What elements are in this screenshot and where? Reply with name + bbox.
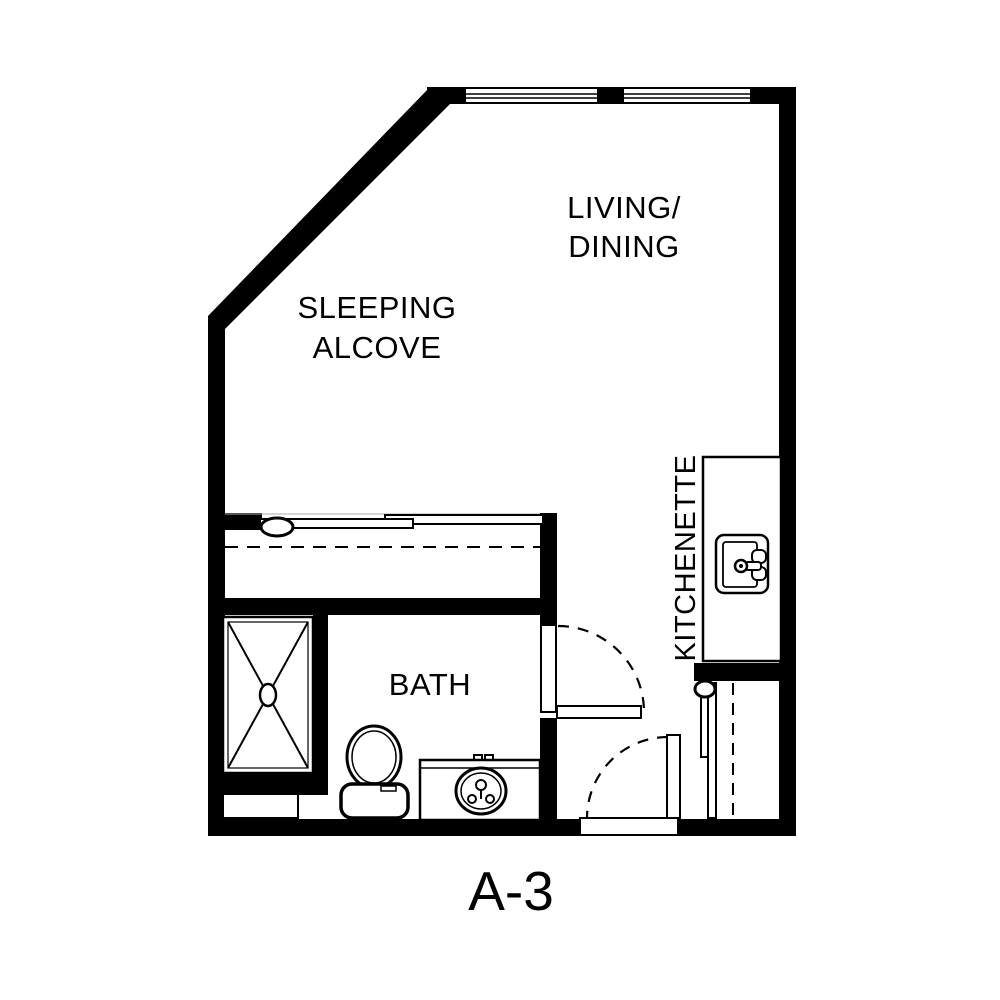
shower-stall-icon (223, 617, 313, 773)
kitchenette-counter (703, 457, 781, 661)
alcove-closet (225, 514, 545, 547)
shower-drain-icon (260, 684, 276, 706)
kitchenette-south-wall (694, 663, 780, 681)
door-swing-arc (558, 626, 644, 712)
toilet-icon (341, 726, 408, 818)
floor-plan-drawing: LIVING/ DINING SLEEPING ALCOVE KITCHENET… (0, 0, 1000, 1000)
bottom-wall (208, 819, 796, 836)
bath-label: BATH (389, 667, 471, 702)
door-swing-arc (587, 737, 668, 818)
window-icon (623, 88, 751, 103)
shower-right-wall (313, 610, 328, 795)
bath-door (541, 625, 644, 718)
room-labels: LIVING/ DINING SLEEPING ALCOVE KITCHENET… (297, 190, 702, 702)
floor-plan-a3: LIVING/ DINING SLEEPING ALCOVE KITCHENET… (0, 0, 1000, 1000)
window-icon (465, 88, 598, 103)
living-dining-label-line1: LIVING/ (567, 190, 681, 225)
entry-door (580, 735, 680, 835)
closet-track-stub-wall (222, 513, 262, 530)
sleeping-alcove-label-line2: ALCOVE (313, 330, 442, 365)
vanity-sink-icon (420, 755, 540, 820)
kitchen-sink-icon (716, 535, 768, 593)
shower-bottom-wall (208, 772, 328, 795)
faucet-icon (476, 780, 486, 790)
kitchenette-label: KITCHENETTE (670, 455, 702, 662)
door-leaf (667, 735, 680, 818)
plan-title: A-3 (468, 860, 554, 922)
bath-north-wall (208, 598, 557, 615)
shower-niche (223, 794, 298, 818)
door-handle-icon (695, 681, 715, 697)
door-jamb (541, 625, 556, 712)
sleeping-alcove-label-line1: SLEEPING (297, 290, 456, 325)
entry-wardrobe (695, 681, 733, 818)
door-threshold (580, 818, 678, 835)
bath-east-wall-lower (540, 718, 557, 830)
door-handle-icon (261, 518, 293, 536)
door-leaf (557, 706, 641, 718)
sliding-door-panel-icon (708, 683, 716, 818)
living-dining-label-line2: DINING (568, 229, 680, 264)
